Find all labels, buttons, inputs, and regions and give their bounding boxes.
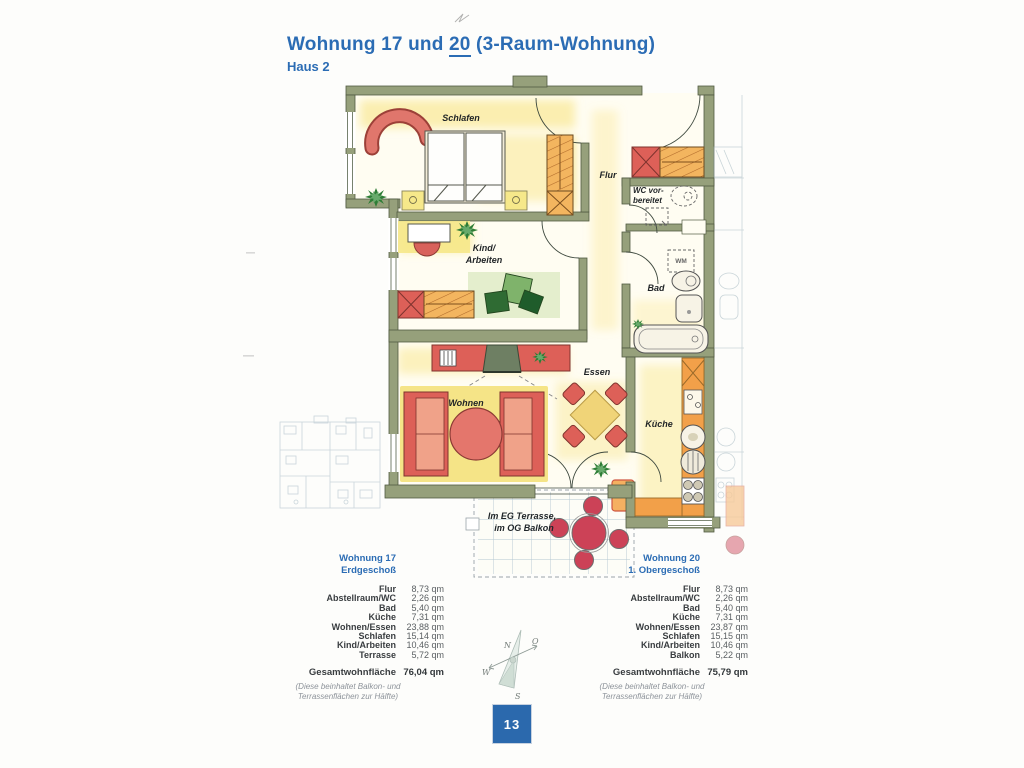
washbasin: [676, 295, 702, 322]
window: [345, 112, 356, 148]
table-title: Wohnung 20: [596, 553, 700, 565]
sofa: [404, 392, 448, 476]
label-kind-1: Kind/: [473, 243, 497, 253]
neighbor-terrace-bench: [726, 486, 744, 526]
label-wohnen: Wohnen: [448, 398, 484, 408]
compass-o: O: [532, 637, 539, 646]
sofa: [500, 392, 544, 476]
table-subtitle: Erdgeschoß: [292, 565, 396, 577]
window: [668, 518, 712, 527]
window: [345, 154, 356, 194]
coffee-table: [450, 408, 502, 460]
label-wc-1: WC vor-: [633, 186, 664, 195]
label-terrasse-1: Im EG Terrasse,: [488, 511, 556, 521]
label-terrasse-2: im OG Balkon: [494, 523, 554, 533]
wardrobe: [547, 135, 573, 215]
window: [389, 434, 399, 472]
page-number: 13: [504, 717, 520, 732]
compass-n: N: [503, 641, 512, 650]
label-wm: WM: [675, 258, 687, 265]
label-essen: Essen: [584, 367, 611, 377]
table-total-row: Gesamtwohnfläche76,04 qm: [292, 667, 444, 678]
compass-w: W: [482, 668, 491, 677]
table-footnote: (Diese beinhaltet Balkon- und Terrassenf…: [586, 682, 718, 701]
table-wohnung-20: Wohnung 20 1. Obergeschoß Flur8,73 qm Ab…: [596, 553, 748, 701]
window: [389, 258, 399, 290]
floor-plan: Schlafen Kind/ Arbeiten Flur WC vor- ber…: [0, 0, 1024, 768]
label-schlafen: Schlafen: [442, 113, 480, 123]
scanned-page: Wohnung 17 und 20 (3-Raum-Wohnung) Haus …: [0, 0, 1024, 768]
table-row: Terrasse5,72 qm: [292, 651, 444, 660]
nightstand: [505, 191, 527, 210]
table-total-row: Gesamtwohnfläche75,79 qm: [596, 667, 748, 678]
label-kueche: Küche: [645, 419, 673, 429]
label-bad: Bad: [647, 283, 665, 293]
table-subtitle: 1. Obergeschoß: [596, 565, 700, 577]
table-row: Balkon5,22 qm: [596, 651, 748, 660]
label-kind-2: Arbeiten: [465, 255, 503, 265]
hall-closet: [632, 147, 704, 177]
key-plan: [280, 416, 380, 508]
neighbor-terrace-table: [726, 536, 744, 554]
terrace-notch: [466, 518, 479, 530]
window: [389, 218, 399, 252]
desk: [408, 224, 450, 242]
neighbor-apartment: [714, 95, 744, 554]
kitchen-counter: [635, 498, 682, 516]
wardrobe: [398, 291, 474, 318]
page-number-badge: 13: [492, 704, 532, 744]
chimney: [513, 76, 547, 87]
table-wohnung-17: Wohnung 17 Erdgeschoß Flur8,73 qm Abstel…: [292, 553, 444, 701]
nightstand: [402, 191, 424, 210]
table-title: Wohnung 17: [292, 553, 396, 565]
shaft-niche: [682, 220, 706, 234]
compass-s: S: [515, 692, 521, 701]
table-footnote: (Diese beinhaltet Balkon- und Terrassenf…: [282, 682, 414, 701]
label-wc-2: bereitet: [633, 196, 662, 205]
tv: [483, 345, 521, 372]
compass-icon: N O W S: [482, 630, 539, 701]
label-flur: Flur: [600, 170, 617, 180]
double-bed: [425, 131, 505, 203]
